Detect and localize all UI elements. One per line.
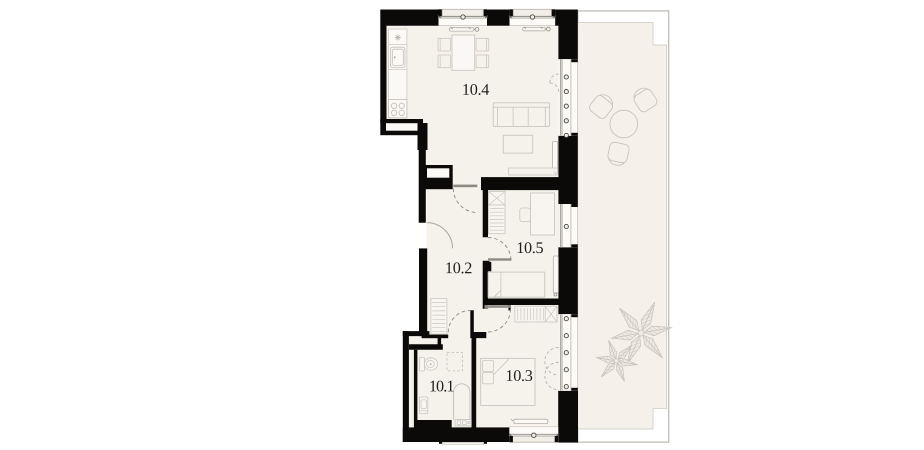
svg-text:10.1: 10.1 xyxy=(429,377,455,395)
svg-text:10.5: 10.5 xyxy=(516,239,543,257)
svg-text:10.3: 10.3 xyxy=(505,367,532,385)
svg-text:10.2: 10.2 xyxy=(445,259,472,277)
svg-text:10.4: 10.4 xyxy=(462,81,489,99)
